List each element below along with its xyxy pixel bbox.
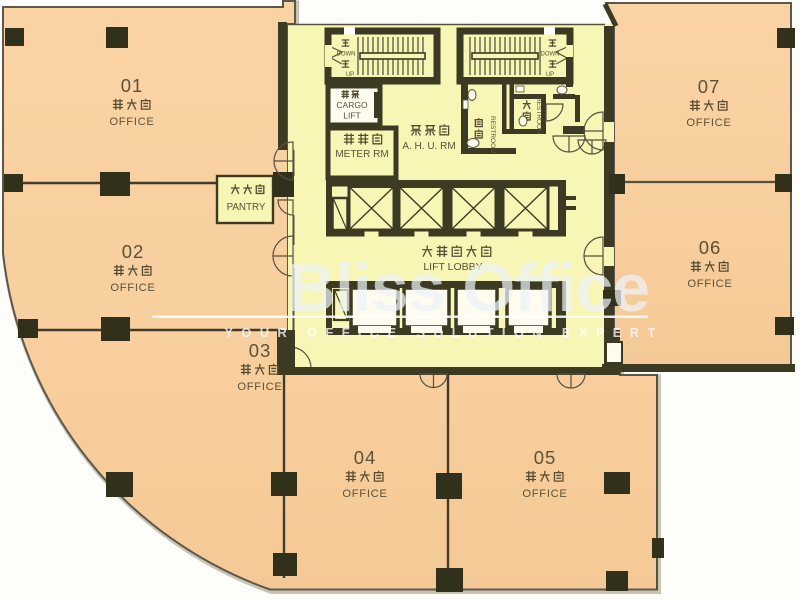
svg-text:OFFICE: OFFICE	[109, 116, 154, 128]
svg-text:OFFICE: OFFICE	[686, 117, 731, 129]
svg-text:RESTROOM: RESTROOM	[535, 97, 542, 135]
svg-text:YOUR OFFICE SOLUTION EXPERT: YOUR OFFICE SOLUTION EXPERT	[224, 325, 663, 340]
svg-text:DOWN: DOWN	[337, 52, 356, 58]
svg-text:A. H. U. RM: A. H. U. RM	[402, 141, 455, 152]
svg-text:06: 06	[699, 237, 722, 258]
svg-text:LIFT: LIFT	[343, 111, 360, 121]
svg-text:05: 05	[534, 447, 557, 468]
svg-text:METER RM: METER RM	[335, 149, 388, 160]
svg-text:02: 02	[122, 241, 145, 262]
svg-text:01: 01	[121, 75, 144, 96]
svg-text:03: 03	[249, 340, 272, 361]
svg-text:OFFICE: OFFICE	[342, 488, 387, 500]
svg-text:CARGO: CARGO	[336, 100, 368, 110]
svg-text:DOWN: DOWN	[541, 52, 560, 58]
svg-text:OFFICE: OFFICE	[687, 278, 732, 290]
svg-text:RESTROOM: RESTROOM	[489, 116, 496, 154]
svg-text:OFFICE: OFFICE	[522, 488, 567, 500]
svg-text:OFFICE: OFFICE	[110, 282, 155, 294]
svg-text:07: 07	[698, 76, 721, 97]
svg-text:Bliss Office: Bliss Office	[287, 250, 649, 326]
svg-text:04: 04	[354, 447, 377, 468]
svg-text:OFFICE: OFFICE	[237, 381, 282, 393]
svg-text:PANTRY: PANTRY	[227, 202, 266, 213]
